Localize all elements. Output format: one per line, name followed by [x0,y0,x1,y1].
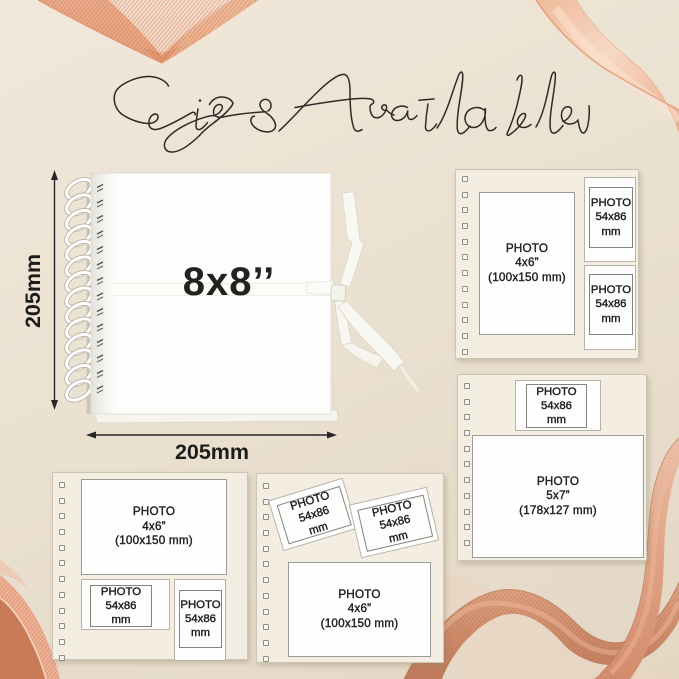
svg-text:8x8’’: 8x8’’ [183,260,275,304]
svg-text:205mm: 205mm [175,440,249,464]
svg-text:205mm: 205mm [21,254,45,328]
